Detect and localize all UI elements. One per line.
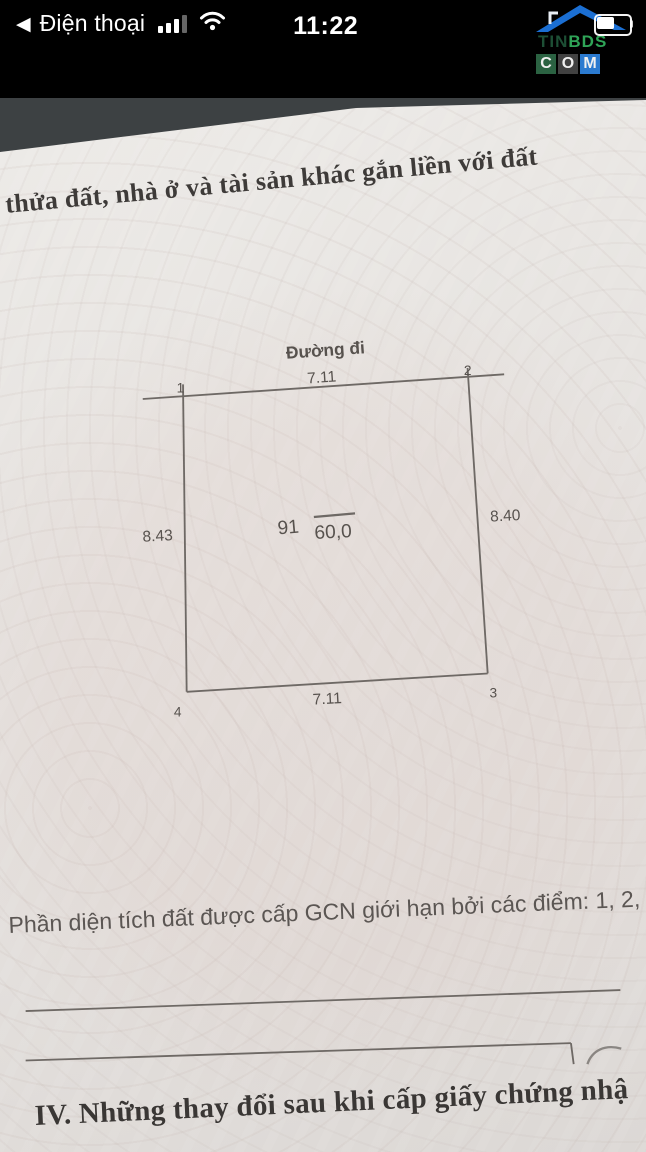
wifi-icon xyxy=(199,10,226,36)
com-letter: O xyxy=(558,54,578,74)
corner-label-3: 3 xyxy=(490,685,498,700)
back-button[interactable]: ◀ Điện thoại xyxy=(16,10,226,37)
back-chevron-icon: ◀ xyxy=(16,15,31,34)
battery-fill xyxy=(597,17,614,29)
dimension-left: 8.43 xyxy=(142,527,173,546)
battery-icon xyxy=(594,14,634,34)
cellular-signal-icon xyxy=(158,15,187,33)
time-label: 11:22 xyxy=(293,12,358,41)
section-divider-line xyxy=(26,990,621,1011)
phone-screen: ◀ Điện thoại 11:22 TINBDS C xyxy=(0,0,646,1152)
dimension-bottom: 7.11 xyxy=(312,690,342,709)
com-letter: C xyxy=(536,54,556,74)
parcel-right-edge xyxy=(468,368,488,674)
parcel-bottom-edge xyxy=(187,673,488,691)
tinbds-watermark: TINBDS C O M xyxy=(534,2,634,74)
corner-label-2: 2 xyxy=(464,363,472,378)
dimension-top: 7.11 xyxy=(307,368,337,387)
dimension-right: 8.40 xyxy=(490,507,521,526)
parcel-number: 91 xyxy=(277,517,300,540)
red-stamp-mark xyxy=(587,1047,621,1064)
certificate-photo: thửa đất, nhà ở và tài sản khác gắn liền… xyxy=(0,98,646,1152)
area-value: 60,0 xyxy=(314,521,352,544)
corner-label-4: 4 xyxy=(174,704,182,719)
area-overline xyxy=(314,513,355,517)
parcel-left-edge xyxy=(183,384,187,691)
logo-com-text: C O M xyxy=(536,54,634,74)
road-label: Đường đi xyxy=(285,337,365,362)
com-letter: M xyxy=(580,54,600,74)
back-label: Điện thoại xyxy=(40,10,146,37)
bottom-rule-line xyxy=(26,1043,571,1060)
corner-label-1: 1 xyxy=(177,381,185,396)
parcel-diagram: Đường đi 7.11 1 2 8.43 8.40 91 60,0 7.11… xyxy=(0,98,646,1152)
bottom-table-border xyxy=(571,1043,574,1064)
